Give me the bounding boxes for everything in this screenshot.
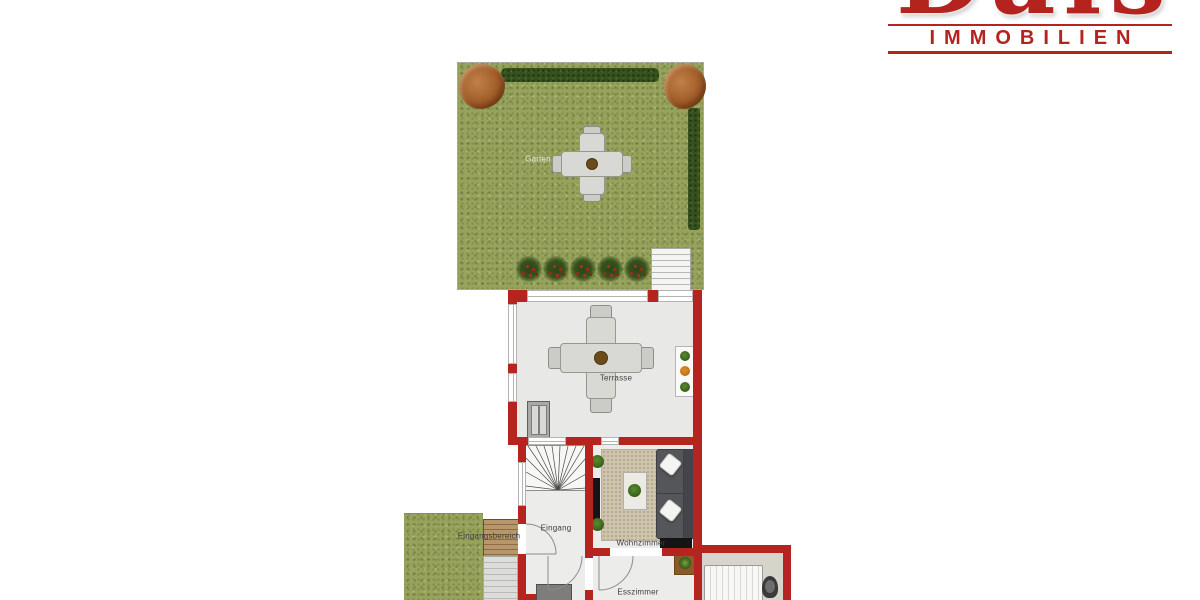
tree-top-left — [459, 64, 505, 109]
wall-segment — [566, 437, 601, 445]
wall-segment — [508, 364, 517, 373]
storage-door-left — [531, 405, 539, 435]
terrace-window-left-lower — [508, 373, 517, 402]
entry-outdoor-stairs — [483, 556, 518, 600]
wall-segment — [518, 554, 526, 600]
planter-plant-1 — [680, 351, 690, 361]
wall-segment — [526, 594, 536, 600]
wall-segment — [585, 590, 593, 600]
storage-door-right — [539, 405, 547, 435]
entrance-door-opening — [585, 558, 593, 590]
berries — [553, 265, 556, 268]
coffee-table-plant — [628, 484, 641, 497]
dining-room-label: Esszimmer — [617, 588, 658, 597]
terrace-door — [601, 437, 619, 445]
terrace-glass-front-left — [527, 290, 648, 302]
bathroom-top-wall — [694, 545, 791, 553]
hedge-top — [501, 68, 659, 82]
terrace-label: Terrasse — [600, 374, 632, 383]
wall-segment — [508, 402, 517, 438]
bush-4 — [597, 256, 623, 282]
entrance-living-wall — [585, 445, 593, 558]
terrace-storage-box — [527, 401, 550, 439]
dining-bath-wall — [694, 553, 702, 600]
garden-stairs — [651, 248, 691, 291]
winder-staircase — [525, 445, 587, 491]
stair-treads — [526, 446, 586, 490]
bathtub — [704, 565, 763, 600]
floorplan-canvas: Garten — [0, 0, 1200, 600]
doormat — [536, 584, 572, 600]
wall-segment — [593, 548, 610, 556]
terrace-table-center — [594, 351, 608, 365]
living-dining-opening — [610, 548, 662, 556]
bush-1 — [516, 256, 542, 282]
terrace-window-left-upper — [508, 304, 517, 364]
wall-segment — [662, 548, 694, 556]
bush-2 — [543, 256, 569, 282]
wall-segment — [518, 445, 526, 462]
bush-5 — [624, 256, 650, 282]
toilet-bowl — [765, 580, 775, 593]
entry-area-label: Eingangsbereich — [458, 532, 521, 541]
front-lawn — [404, 513, 483, 600]
wall-segment — [648, 290, 658, 302]
toilet — [762, 576, 778, 598]
brand-logo: Dais IMMOBILIEN — [880, 0, 1180, 58]
bush-3 — [570, 256, 596, 282]
wall-segment — [508, 437, 528, 445]
terrace-right-wall — [693, 290, 702, 553]
entrance-window — [518, 462, 526, 506]
wall-segment — [517, 290, 527, 302]
logo-rule-top — [888, 24, 1172, 26]
berries — [607, 265, 610, 268]
brand-subtitle: IMMOBILIEN — [888, 27, 1172, 50]
logo-rule-bottom — [888, 51, 1172, 54]
wall-segment — [619, 437, 693, 445]
berries — [580, 265, 583, 268]
planter-plant-2 — [680, 366, 690, 376]
house-front-window — [528, 437, 566, 445]
planter-plant-3 — [680, 382, 690, 392]
entrance-label: Eingang — [541, 524, 572, 533]
terrace-glass-front-right — [658, 290, 693, 302]
berries — [634, 265, 637, 268]
garden-table-center — [586, 158, 598, 170]
bathroom-right-wall — [783, 553, 791, 600]
living-room-label: Wohnzimmer — [617, 539, 666, 548]
berries — [526, 265, 529, 268]
wall-segment — [508, 290, 517, 304]
terrace-chair-bottom — [590, 397, 612, 413]
garden-label: Garten — [525, 155, 551, 164]
plant-table-plant — [679, 557, 691, 569]
garden-area: Garten — [457, 62, 704, 290]
wall-segment — [518, 506, 526, 524]
hedge-right — [688, 108, 700, 230]
tree-top-right — [664, 64, 706, 109]
